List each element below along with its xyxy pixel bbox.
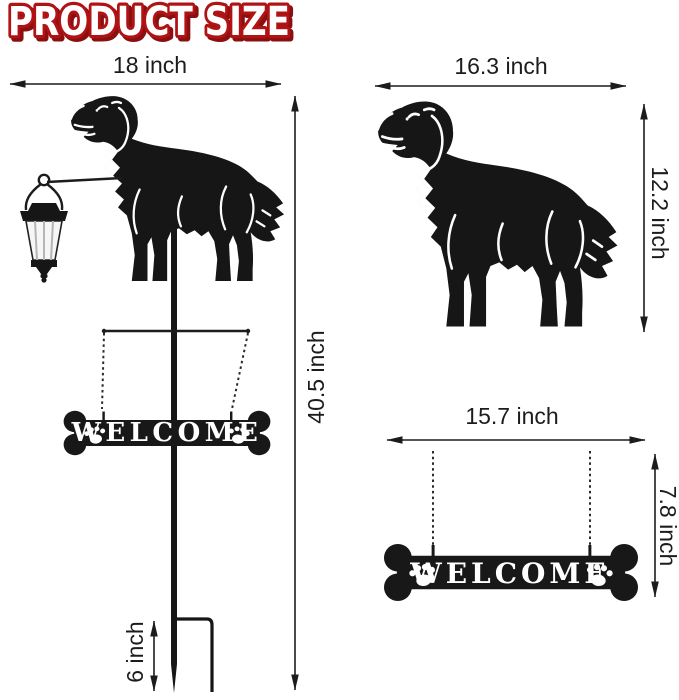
- page-title: PRODUCT SIZE PRODUCT SIZE: [8, 0, 293, 48]
- dog-cutout-figure: 16.3 inch 12.2 inch: [375, 53, 673, 332]
- sign-cutout-figure: 15.7 inch WELCOME 7.8 inch: [384, 403, 679, 601]
- solar-lantern-icon: [20, 175, 122, 283]
- dim-sign-height-label: 7.8 inch: [655, 486, 679, 567]
- lantern-knob: [41, 277, 46, 282]
- ground-stake: [171, 226, 177, 693]
- dim-stake-depth-label: 6 inch: [122, 621, 148, 682]
- lantern-stem: [41, 274, 48, 278]
- hanger-bar-end: [246, 329, 250, 333]
- dim-left-width: 18 inch: [10, 52, 281, 84]
- dim-dog-height-label: 12.2 inch: [647, 166, 673, 259]
- hanging-chain-left: [102, 333, 104, 409]
- dim-left-height-label: 40.5 inch: [303, 330, 329, 423]
- ground-fork: [177, 619, 212, 692]
- lantern-collar: [31, 260, 57, 267]
- dog-silhouette: [71, 96, 284, 281]
- dim-left-height: 40.5 inch: [295, 96, 329, 690]
- lantern-cap: [20, 203, 68, 221]
- dog-silhouette: [378, 102, 618, 327]
- dim-dog-width-label: 16.3 inch: [454, 53, 547, 79]
- left-assembly: WELCOME: [20, 96, 284, 693]
- page-title-text: PRODUCT SIZE: [8, 0, 290, 45]
- diagram-canvas: PRODUCT SIZE PRODUCT SIZE WELCOM: [0, 0, 679, 700]
- welcome-text: WELCOME: [71, 418, 263, 448]
- dim-sign-width-label: 15.7 inch: [465, 403, 558, 429]
- product-size-diagram: PRODUCT SIZE PRODUCT SIZE WELCOM: [0, 0, 679, 700]
- dim-stake-depth: 6 inch: [122, 621, 154, 691]
- welcome-text: WELCOME: [409, 557, 610, 590]
- lantern-foot: [36, 267, 52, 274]
- dim-left-width-label: 18 inch: [113, 52, 187, 78]
- hanger-bar-end: [102, 329, 106, 333]
- hanging-chain-right: [232, 333, 248, 409]
